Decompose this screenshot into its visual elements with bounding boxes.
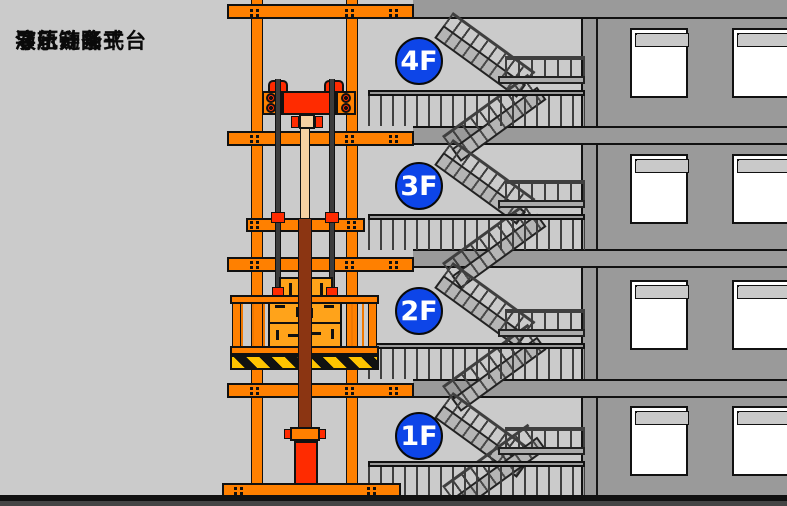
- bolt-group: [234, 487, 237, 490]
- platform-post-left: [232, 298, 241, 348]
- landing-balusters: [505, 184, 585, 200]
- cylinder-pin-right: [319, 429, 326, 439]
- hydraulic-cylinder: [294, 441, 318, 485]
- landing-platform: [498, 447, 585, 455]
- walkway-rail: [368, 214, 585, 220]
- landing-rail: [505, 180, 585, 184]
- bolt-group: [250, 135, 253, 138]
- window-pane: [635, 411, 637, 413]
- platform-post-right: [368, 298, 377, 348]
- floor-badge-3f: 3F: [395, 162, 443, 210]
- landing-balusters: [505, 313, 585, 329]
- head-bolt: [341, 103, 351, 113]
- floor-badge-label: 2F: [400, 296, 437, 327]
- window-pane: [737, 33, 739, 35]
- bolt-group: [389, 261, 392, 264]
- window-pane: [635, 285, 637, 287]
- staircase-4f: [360, 18, 585, 126]
- window: [732, 406, 787, 476]
- landing-platform: [498, 76, 585, 84]
- bolt-group: [250, 9, 253, 12]
- window: [630, 28, 688, 98]
- bolt-group: [250, 221, 253, 224]
- crossbeam-top: [227, 4, 414, 19]
- animation-stage: 4F 3F 2F 1F 导轨链条式 液压升降平台 演示动画: [0, 0, 787, 506]
- crate-mark: [276, 330, 279, 340]
- window-pane: [737, 285, 739, 287]
- landing-platform: [498, 329, 585, 337]
- floor-badge-2f: 2F: [395, 287, 443, 335]
- window-pane: [635, 159, 637, 161]
- crate-mark: [289, 283, 292, 295]
- head-bolt: [341, 93, 351, 103]
- crossbeam-3f: [227, 257, 414, 272]
- window: [630, 154, 688, 224]
- bolt-group: [345, 387, 348, 390]
- crate-mark: [288, 334, 298, 337]
- lift-chain-right: [329, 79, 335, 295]
- window: [630, 406, 688, 476]
- walkway-balusters: [368, 220, 585, 250]
- walkway-balusters: [368, 96, 585, 126]
- floor-badge-label: 4F: [400, 46, 437, 77]
- bolt-group: [250, 387, 253, 390]
- bolt-group: [345, 135, 348, 138]
- title-line-3: 演示动画: [15, 28, 103, 55]
- bolt-group: [389, 135, 392, 138]
- ground-shadow: [0, 501, 787, 506]
- floor-slab-roof: [413, 0, 787, 19]
- walkway-rail: [368, 461, 585, 467]
- window-pane: [737, 411, 739, 413]
- chain-tensioner-left: [271, 212, 285, 223]
- floor-badge-label: 3F: [400, 171, 437, 202]
- bolt-group: [347, 221, 350, 224]
- landing-rail: [505, 309, 585, 313]
- landing-balusters: [505, 431, 585, 447]
- window: [732, 154, 787, 224]
- landing-balusters: [505, 60, 585, 76]
- bolt-group: [367, 487, 370, 490]
- window-pane: [635, 33, 637, 35]
- crate-mark: [311, 332, 321, 335]
- chain-tensioner-right: [325, 212, 339, 223]
- cylinder-head-beam: [282, 91, 336, 115]
- crate-mark: [275, 305, 285, 308]
- crate-mark: [331, 329, 334, 339]
- mast-left: [251, 0, 263, 484]
- crate-mark: [324, 305, 334, 308]
- bolt-group: [389, 387, 392, 390]
- crate-mark: [320, 283, 323, 295]
- rod-flange-tab: [315, 116, 323, 128]
- window-pane: [737, 159, 739, 161]
- base-plate: [222, 483, 401, 497]
- crossbeam-4f: [227, 131, 414, 146]
- window: [630, 280, 688, 350]
- bolt-group: [345, 9, 348, 12]
- walkway-rail: [368, 343, 585, 349]
- piston-rod-upper: [300, 128, 310, 220]
- piston-rod-lower: [298, 218, 312, 432]
- rod-flange-tab: [291, 116, 299, 128]
- bolt-group: [250, 261, 253, 264]
- mast-right: [346, 0, 358, 484]
- floor-badge-4f: 4F: [395, 37, 443, 85]
- landing-rail: [505, 427, 585, 431]
- bolt-group: [345, 261, 348, 264]
- floor-badge-1f: 1F: [395, 412, 443, 460]
- walkway-balusters: [368, 349, 585, 379]
- staircase-3f: [360, 145, 585, 250]
- walkway-rail: [368, 90, 585, 96]
- landing-rail: [505, 56, 585, 60]
- lift-chain-left: [275, 79, 281, 295]
- bolt-group: [389, 9, 392, 12]
- crossbeam-2f: [227, 383, 414, 398]
- cylinder-flange: [290, 427, 320, 441]
- landing-platform: [498, 200, 585, 208]
- floor-badge-label: 1F: [400, 421, 437, 452]
- rod-flange: [299, 114, 315, 129]
- window: [732, 28, 787, 98]
- staircase-2f: [360, 268, 585, 379]
- window: [732, 280, 787, 350]
